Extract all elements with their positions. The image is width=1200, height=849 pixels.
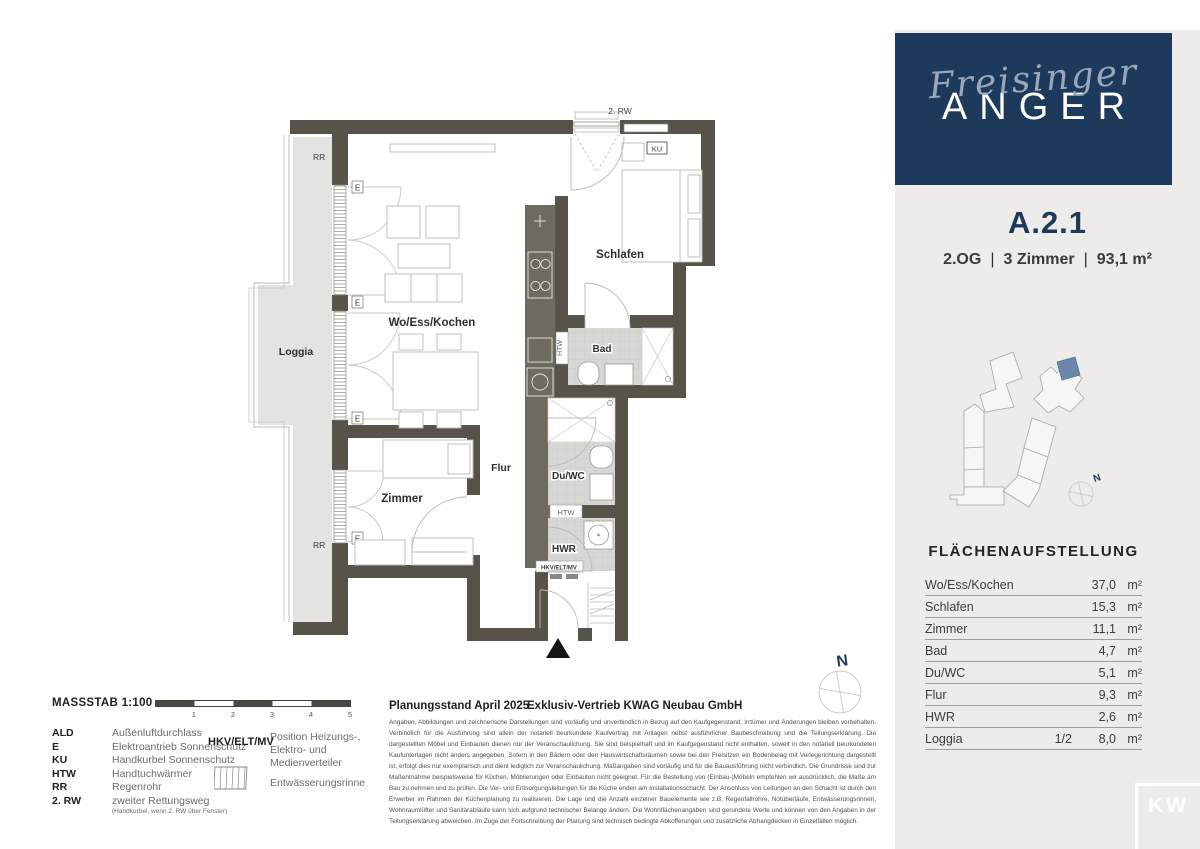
rr-label-bottom: RR	[313, 540, 325, 550]
unit-area: 93,1 m²	[1097, 251, 1152, 268]
entry	[546, 583, 614, 658]
legend-item: 2. RWzweiter Rettungsweg	[52, 795, 246, 809]
unit-id: A.2.1	[895, 205, 1200, 241]
table-row: Loggia1/28,0m²	[925, 728, 1142, 750]
unit-subtitle: 2.OG|3 Zimmer|93,1 m²	[895, 251, 1200, 269]
site-north-label: N	[1092, 472, 1102, 485]
unit-header: A.2.1 2.OG|3 Zimmer|93,1 m²	[895, 205, 1200, 269]
scale-tick: 4	[309, 710, 313, 719]
site-north-compass: N	[1069, 472, 1102, 506]
room-label-loggia: Loggia	[279, 346, 314, 358]
drainage-channel-icon	[214, 766, 250, 792]
e-markers: E E E E	[352, 181, 363, 544]
room-label-zimmer: Zimmer	[381, 493, 423, 505]
htw-label-duwc: HTW	[557, 508, 575, 517]
stairs	[588, 583, 614, 628]
room-label-flur: Flur	[491, 462, 511, 474]
table-row: Schlafen15,3m²	[925, 596, 1142, 618]
rw2-label: 2. RW	[608, 106, 631, 116]
rr-label-top: RR	[313, 152, 325, 162]
legend-hkv-abbr: HKV/ELT/MV	[208, 736, 274, 748]
table-row: Zimmer11,1m²	[925, 618, 1142, 640]
toilet-duwc	[590, 446, 613, 468]
svg-text:E: E	[355, 299, 360, 308]
sales-contact: Exklusiv-Vertrieb KWAG Neubau GmbH	[527, 700, 742, 712]
area-table-title: FLÄCHENAUFSTELLUNG	[925, 543, 1142, 560]
planning-status: Planungsstand April 2025	[389, 700, 529, 712]
svg-text:E: E	[355, 184, 360, 193]
unit-rooms: 3 Zimmer	[1003, 251, 1074, 268]
legal-disclaimer: Angaben, Abbildungen und zeichnerische D…	[389, 717, 876, 827]
scale-bar: 1 2 3 4 5	[155, 698, 355, 720]
room-label-wo: Wo/Ess/Kochen	[389, 317, 476, 329]
legend-note: (Handkurbel, wenn 2. RW über Fenster)	[112, 808, 246, 816]
washbasin-duwc	[590, 474, 613, 500]
partner-logo-fragment: KW	[1135, 783, 1200, 849]
table-row: Du/WC5,1m²	[925, 662, 1142, 684]
north-compass: N	[819, 652, 861, 713]
page: Loggia RR RR Rinne Rinne	[0, 0, 1200, 849]
legend-hkv-desc: Position Heizungs-, Elektro- und Medienv…	[270, 731, 390, 770]
rw-window: 2. RW E KU	[573, 106, 668, 172]
washbasin-bad	[605, 364, 633, 385]
floor-plan: Loggia RR RR Rinne Rinne	[0, 0, 895, 760]
htw-label-bad: HTW	[557, 340, 564, 356]
site-plan: N	[930, 320, 1180, 530]
brand-logo: Freisinger ANGER	[895, 33, 1172, 185]
area-table: FLÄCHENAUFSTELLUNG Wo/Ess/Kochen37,0m² S…	[925, 543, 1142, 750]
room-label-hwr: HWR	[552, 544, 577, 555]
loggia: Loggia RR RR Rinne Rinne	[249, 135, 342, 622]
scale-tick: 1	[192, 710, 196, 719]
room-label-bad: Bad	[593, 344, 612, 355]
table-row: HWR2,6m²	[925, 706, 1142, 728]
svg-text:E: E	[355, 415, 360, 424]
table-row: Wo/Ess/Kochen37,0m²	[925, 574, 1142, 596]
scale-tick: 2	[231, 710, 235, 719]
ku-marker: KU	[652, 145, 662, 154]
unit-floor: 2.OG	[943, 251, 981, 268]
north-label: N	[835, 652, 849, 670]
table-row: Bad4,7m²	[925, 640, 1142, 662]
legend-rinne-desc: Entwässerungsrinne	[270, 777, 365, 789]
entry-arrow	[546, 638, 570, 658]
scale-tick: 5	[348, 710, 352, 719]
room-label-duwc: Du/WC	[552, 471, 585, 482]
room-label-schlafen: Schlafen	[596, 249, 644, 261]
scale-label: MASSSTAB 1:100	[52, 697, 152, 709]
scale-tick: 3	[270, 710, 274, 719]
toilet-bad	[578, 362, 599, 385]
table-row: Flur9,3m²	[925, 684, 1142, 706]
